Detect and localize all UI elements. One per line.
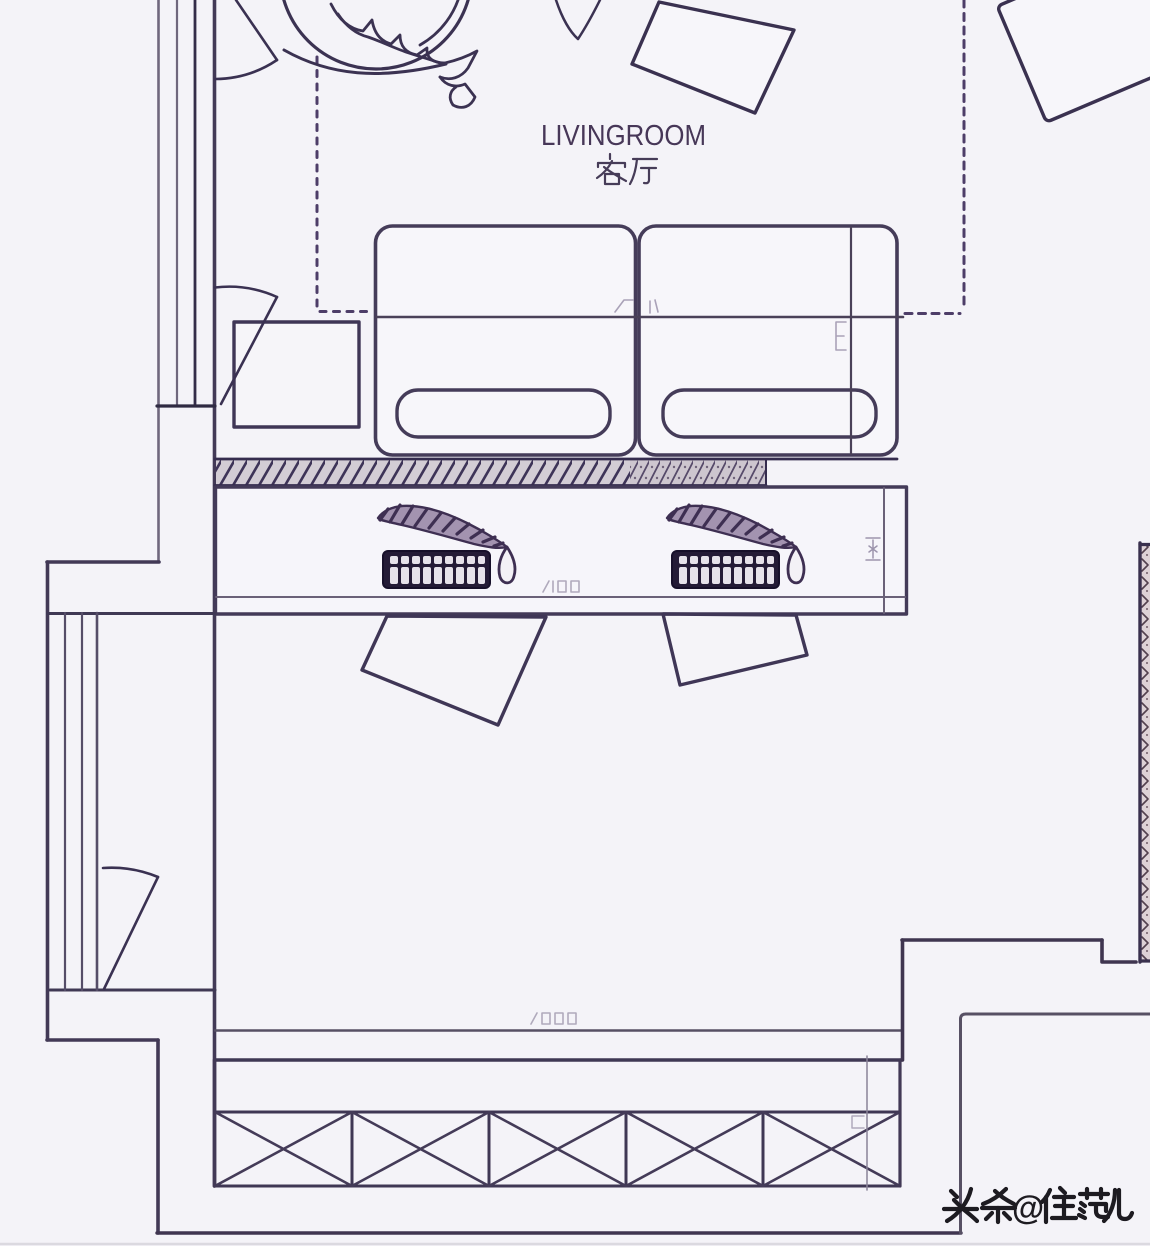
svg-text:LIVINGROOM: LIVINGROOM bbox=[541, 120, 706, 152]
svg-text:@: @ bbox=[1012, 1189, 1044, 1226]
